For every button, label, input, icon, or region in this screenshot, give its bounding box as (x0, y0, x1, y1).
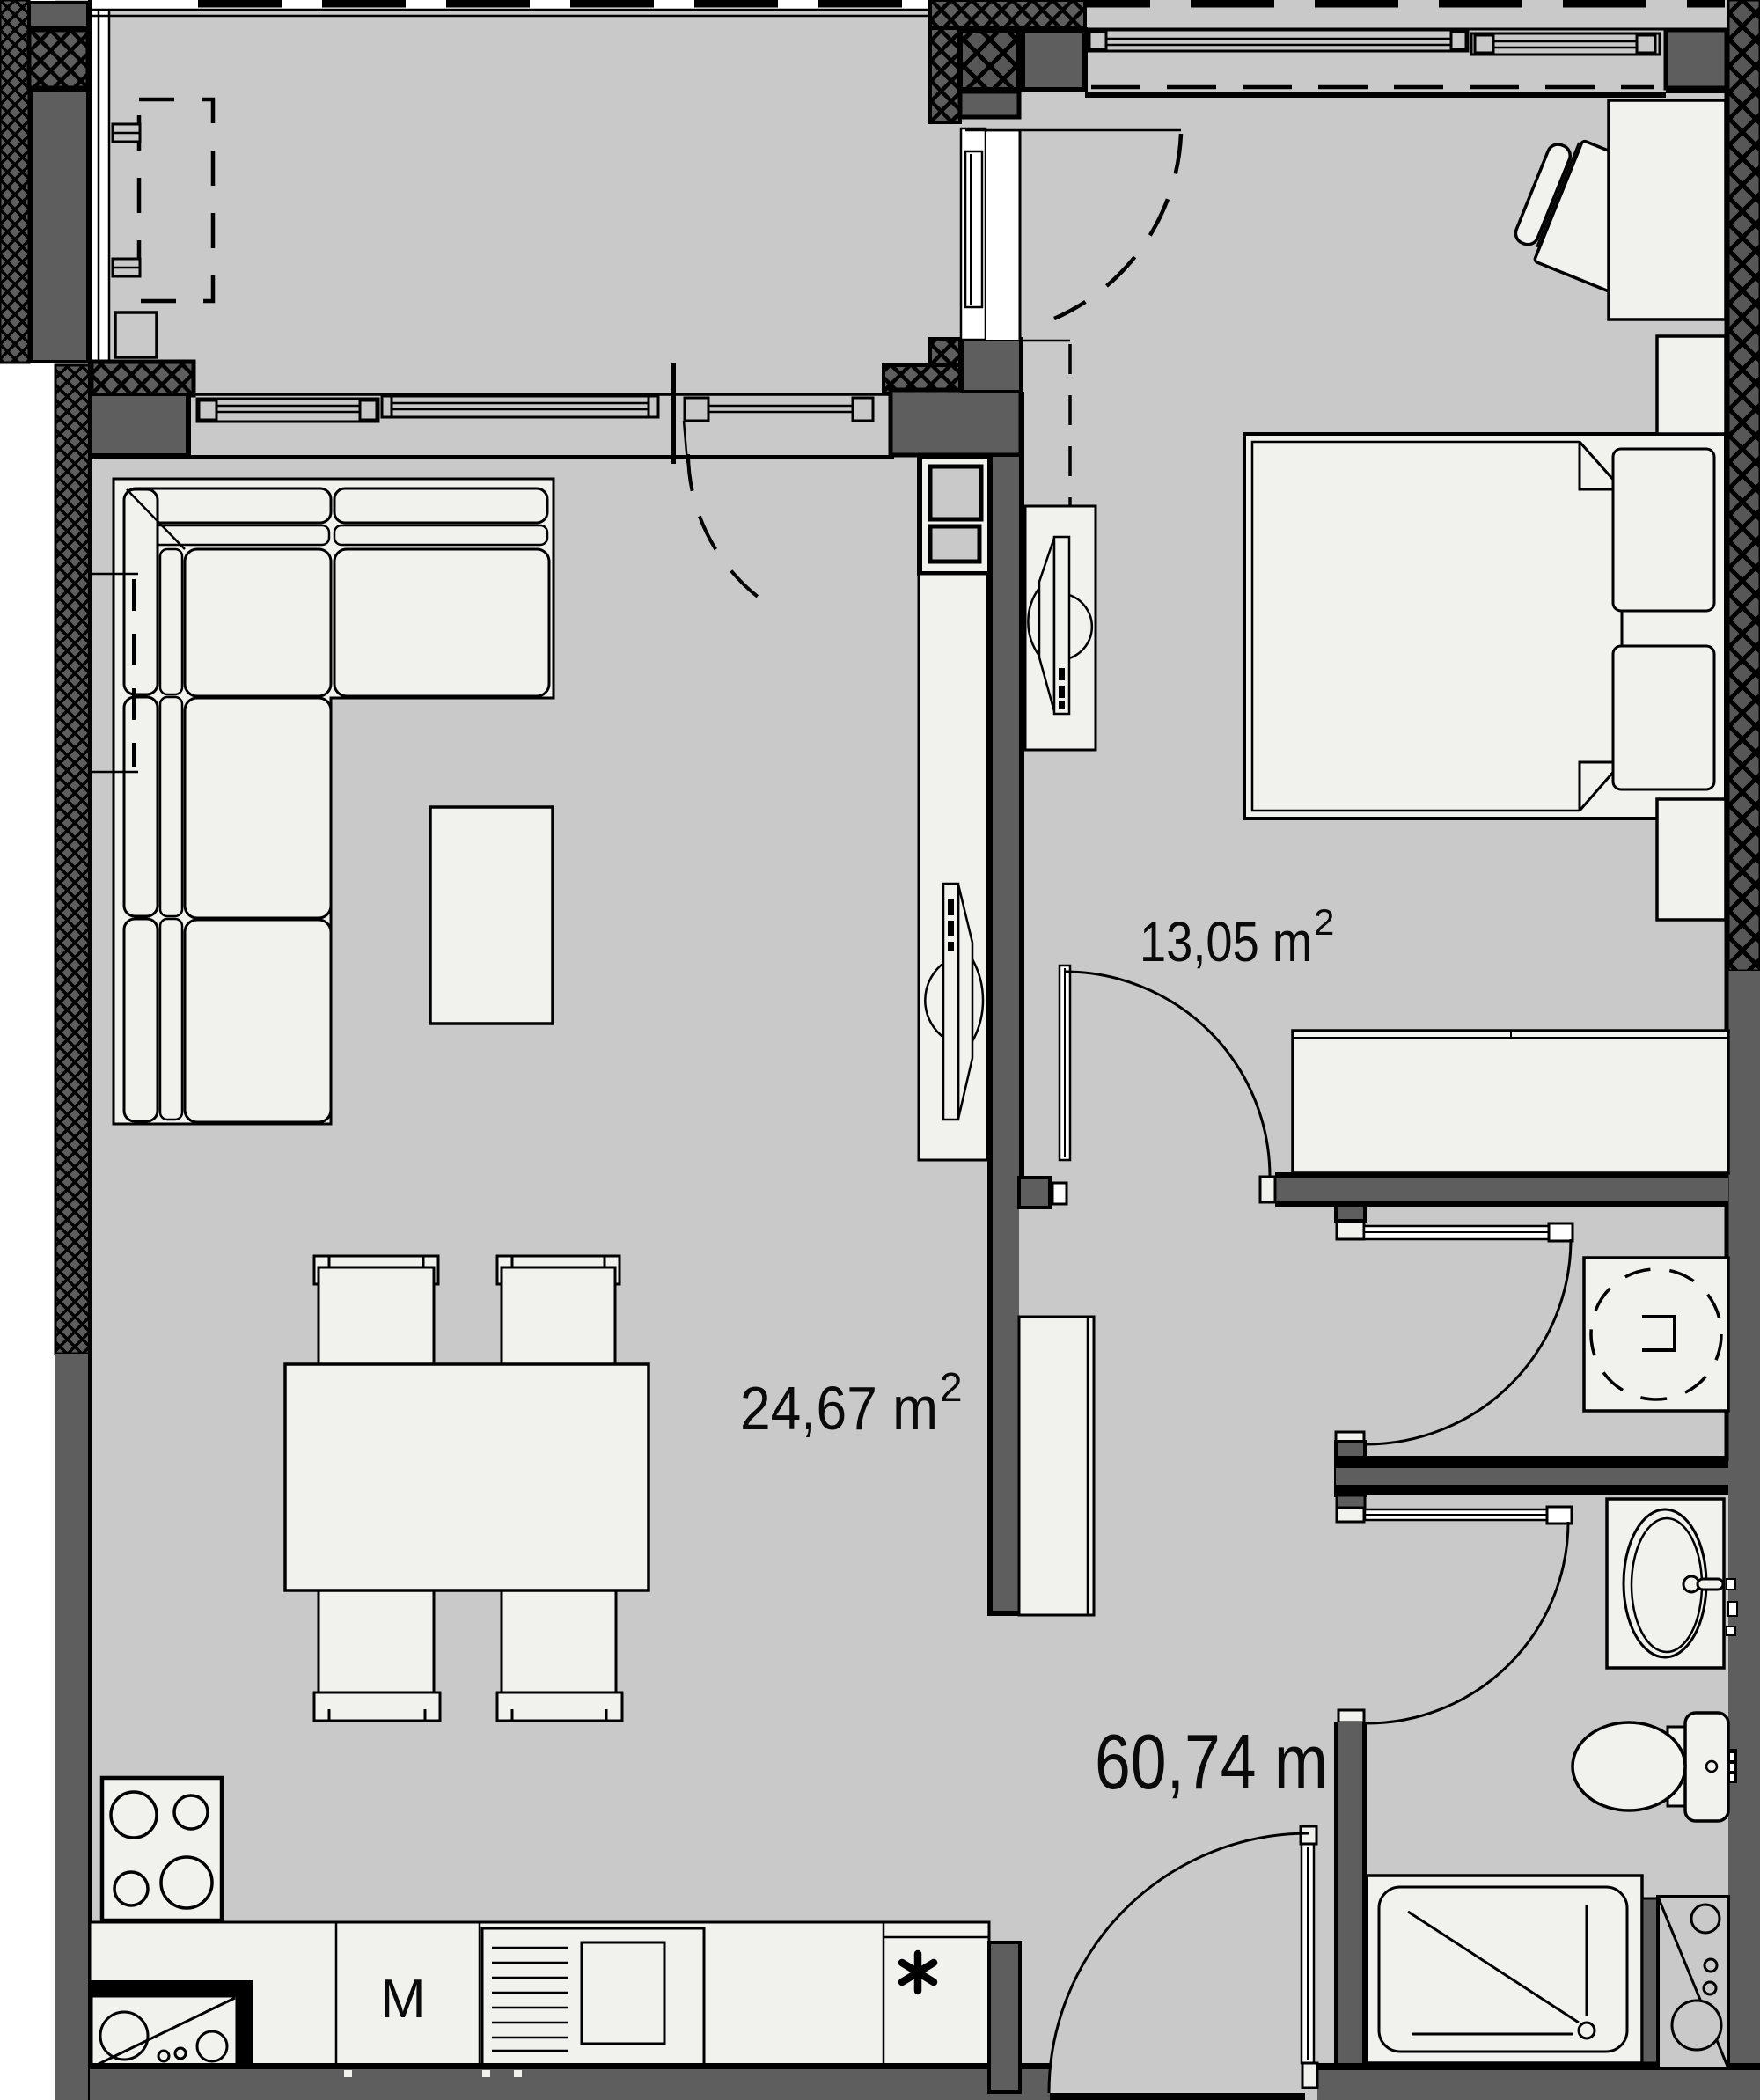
svg-text:2: 2 (1314, 901, 1334, 943)
svg-text:60,74 m: 60,74 m (1095, 1718, 1328, 1805)
svg-text:13,05 m: 13,05 m (1140, 910, 1312, 973)
svg-text:2: 2 (940, 1364, 963, 1410)
svg-text:24,67 m: 24,67 m (740, 1374, 938, 1443)
svg-text:M: M (380, 1969, 426, 2030)
